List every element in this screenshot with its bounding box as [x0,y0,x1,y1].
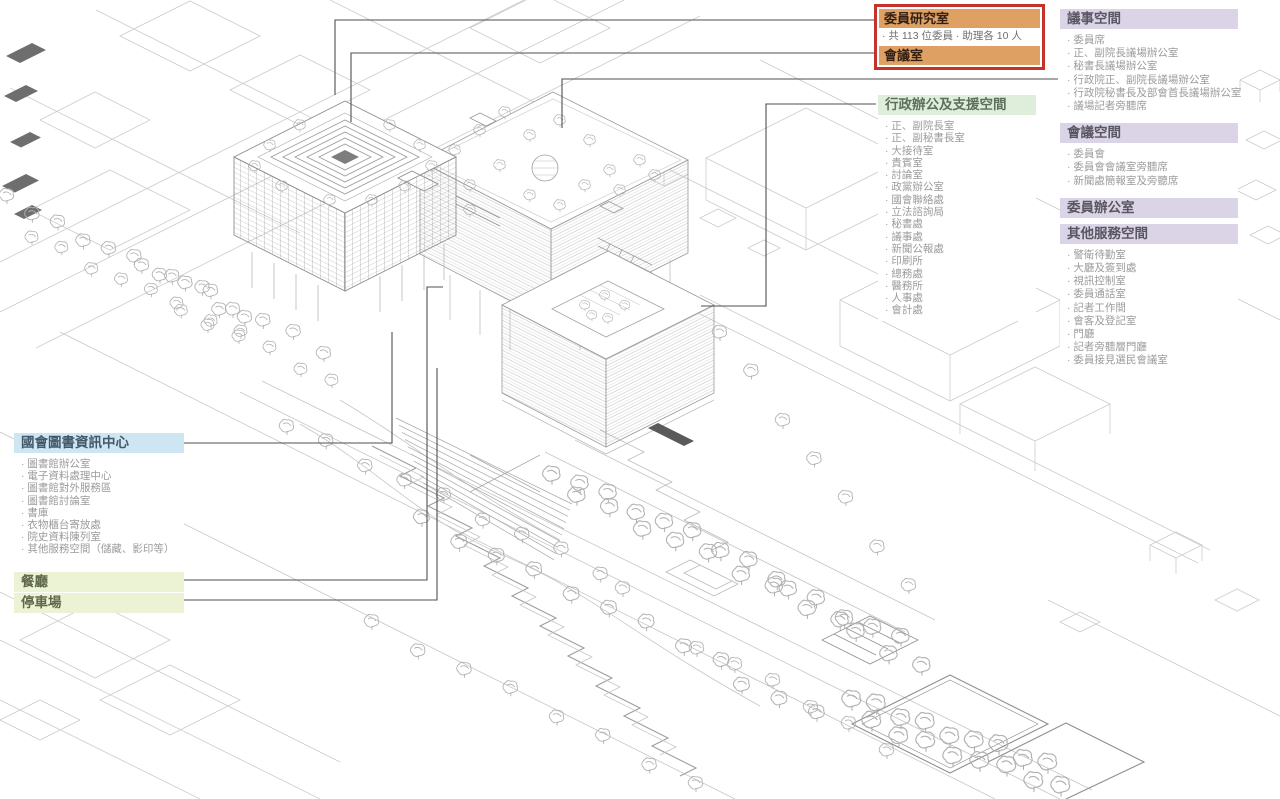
legend-item: 正、副院長室 [885,120,1034,132]
legend-item: 議事處 [885,231,1034,243]
legend-item: 委員會 [1067,148,1236,161]
legend-item: 圖書館對外服務區 [21,482,182,494]
group-title-member-office: 委員辦公室 [1060,198,1238,218]
legend-item: 醫務所 [885,280,1034,292]
legend-item: 圖書館討論室 [21,495,182,507]
legend-item: 門廳 [1067,328,1236,341]
legend-item: 委員席 [1067,34,1236,47]
legend-parking-bar: 停車場 [14,593,184,613]
legend-item: 行政院秘書長及部會首長議場辦公室 [1067,87,1236,100]
group-title-other-service: 其他服務空間 [1060,224,1238,244]
legend-item: 圖書館辦公室 [21,458,182,470]
callout-research-room-bar: 委員研究室 [879,9,1040,28]
legend-item: 院史資料陳列室 [21,531,182,543]
legend-item: 電子資料處理中心 [21,470,182,482]
legend-item: 行政院正、副院長議場辦公室 [1067,74,1236,87]
legend-item: 新聞公報處 [885,243,1034,255]
legend-item: 大廳及簽到處 [1067,262,1236,275]
group-items-assembly: 委員席正、副院長議場辦公室秘書長議場辦公室行政院正、副院長議場辦公室行政院秘書長… [1060,29,1238,117]
legend-item: 會客及登記室 [1067,315,1236,328]
legend-item: 秘書處 [885,218,1034,230]
callout-meeting-room-bar: 會議室 [879,46,1040,65]
callout-member-count-note: · 共 113 位委員 · 助理各 10 人 [879,28,1040,46]
group-items-meeting: 委員會委員會會議室旁聽席新聞處簡報室及旁聽席 [1060,143,1238,192]
group-title-admin: 行政辦公及支援空間 [878,95,1036,115]
legend-item: 總務處 [885,268,1034,280]
legend-right-column: 議事空間 委員席正、副院長議場辦公室秘書長議場辦公室行政院正、副院長議場辦公室行… [1060,9,1238,376]
legend-item: 委員會會議室旁聽席 [1067,161,1236,174]
group-title-assembly: 議事空間 [1060,9,1238,29]
legend-library-block: 國會圖書資訊中心 圖書館辦公室電子資料處理中心圖書館對外服務區圖書館討論室書庫衣… [14,433,184,560]
legend-item: 大接待室 [885,145,1034,157]
legend-item: 議場記者旁聽席 [1067,100,1236,113]
leader-library-center [184,332,392,443]
group-title-meeting: 會議空間 [1060,123,1238,143]
legend-item: 討論室 [885,169,1034,181]
legend-restaurant-bar: 餐廳 [14,572,184,592]
legend-admin-block: 行政辦公及支援空間 正、副院長室正、副秘書長室大接待室貴賓室討論室政黨辦公室國會… [878,95,1036,321]
legend-item: 新聞處簡報室及旁聽席 [1067,175,1236,188]
legend-item: 貴賓室 [885,157,1034,169]
leader-research-rooms [335,20,874,95]
legend-item: 正、副院長議場辦公室 [1067,47,1236,60]
legend-item: 其他服務空間（儲藏、影印等） [21,543,182,555]
legend-item: 立法諮詢局 [885,206,1034,218]
legend-item: 秘書長議場辦公室 [1067,60,1236,73]
legend-item: 視訊控制室 [1067,275,1236,288]
group-items-other-service: 警衛待勤室大廳及簽到處視訊控制室委員通話室記者工作間會客及登記室門廳記者旁聽層門… [1060,244,1238,372]
legend-item: 印刷所 [885,255,1034,267]
legend-item: 書庫 [21,507,182,519]
legend-item: 衣物櫃台寄放處 [21,519,182,531]
garden-plots [822,616,1144,799]
legend-item: 警衛待勤室 [1067,249,1236,262]
group-title-parking: 停車場 [14,593,184,613]
legend-item: 會計處 [885,304,1034,316]
legend-item: 記者旁聽層門廳 [1067,341,1236,354]
legend-item: 人事處 [885,292,1034,304]
highlight-callout-box: 委員研究室 · 共 113 位委員 · 助理各 10 人 會議室 [874,4,1045,70]
legend-item: 國會聯絡處 [885,194,1034,206]
group-items-library: 圖書館辦公室電子資料處理中心圖書館對外服務區圖書館討論室書庫衣物櫃台寄放處院史資… [14,453,184,560]
legislative-campus-diagram: 委員研究室 · 共 113 位委員 · 助理各 10 人 會議室 議事空間 委員… [0,0,1280,799]
group-title-library: 國會圖書資訊中心 [14,433,184,453]
group-items-admin: 正、副院長室正、副秘書長室大接待室貴賓室討論室政黨辦公室國會聯絡處立法諮詢局秘書… [878,115,1036,321]
legend-item: 委員接見選民會議室 [1067,354,1236,367]
leader-admin-space [701,104,876,306]
group-title-restaurant: 餐廳 [14,572,184,592]
leader-meeting-room [351,53,874,122]
legend-item: 正、副秘書長室 [885,132,1034,144]
legend-item: 委員通話室 [1067,288,1236,301]
legend-item: 政黨辦公室 [885,181,1034,193]
plaza-elements [470,423,738,596]
legend-item: 記者工作間 [1067,302,1236,315]
